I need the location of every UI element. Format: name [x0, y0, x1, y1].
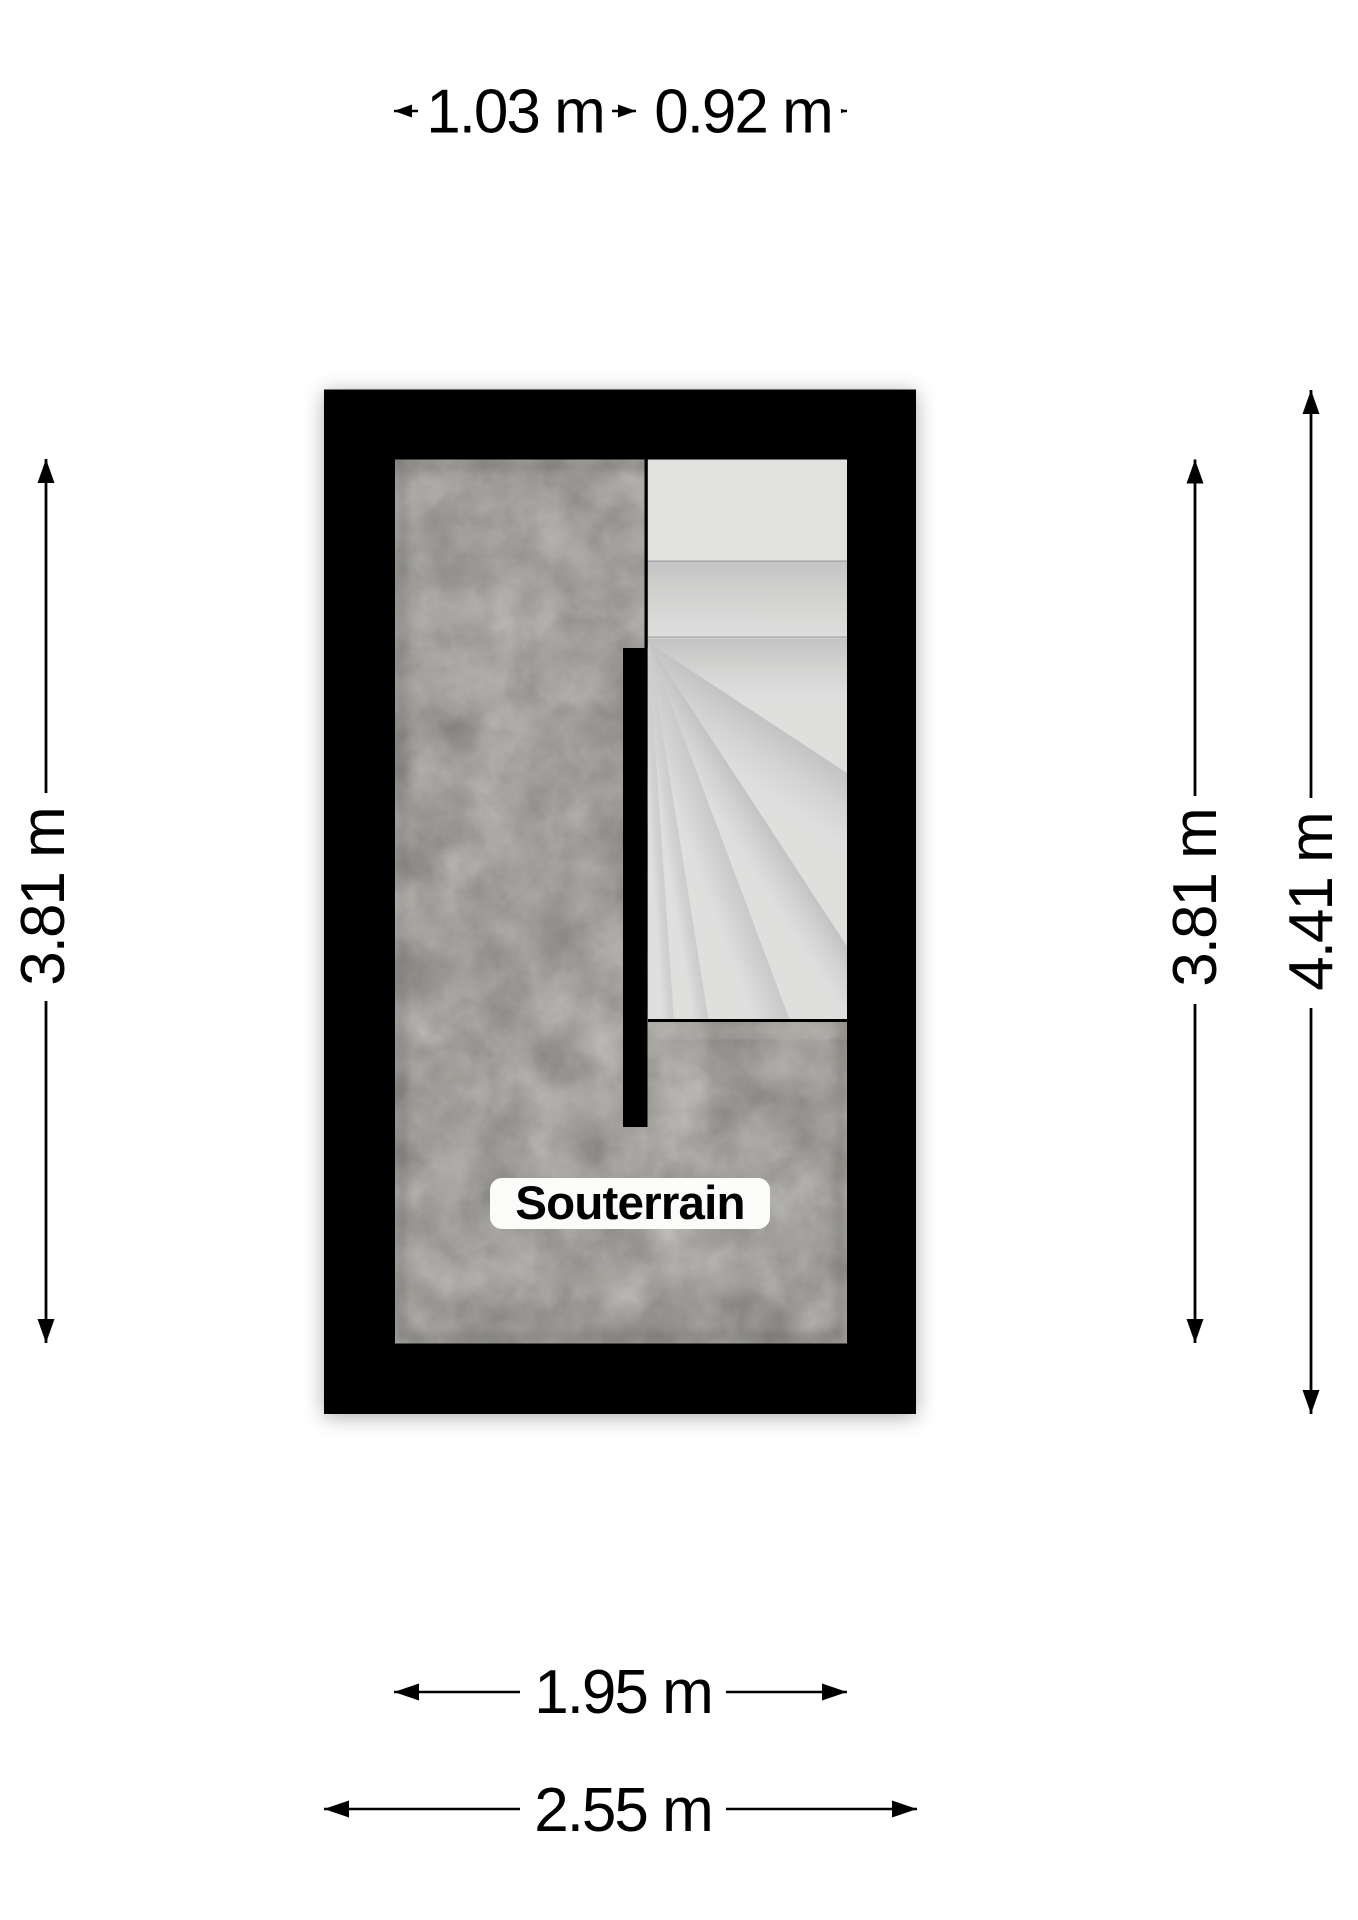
- svg-text:4.41 m: 4.41 m: [1277, 813, 1346, 991]
- svg-text:1.03 m: 1.03 m: [426, 78, 604, 147]
- svg-text:3.81 m: 3.81 m: [1161, 809, 1230, 987]
- svg-text:0.92 m: 0.92 m: [654, 78, 832, 147]
- svg-text:3.81 m: 3.81 m: [9, 808, 78, 986]
- svg-text:1.95 m: 1.95 m: [534, 1658, 712, 1727]
- svg-text:Souterrain: Souterrain: [515, 1177, 745, 1230]
- svg-text:2.55 m: 2.55 m: [534, 1776, 712, 1845]
